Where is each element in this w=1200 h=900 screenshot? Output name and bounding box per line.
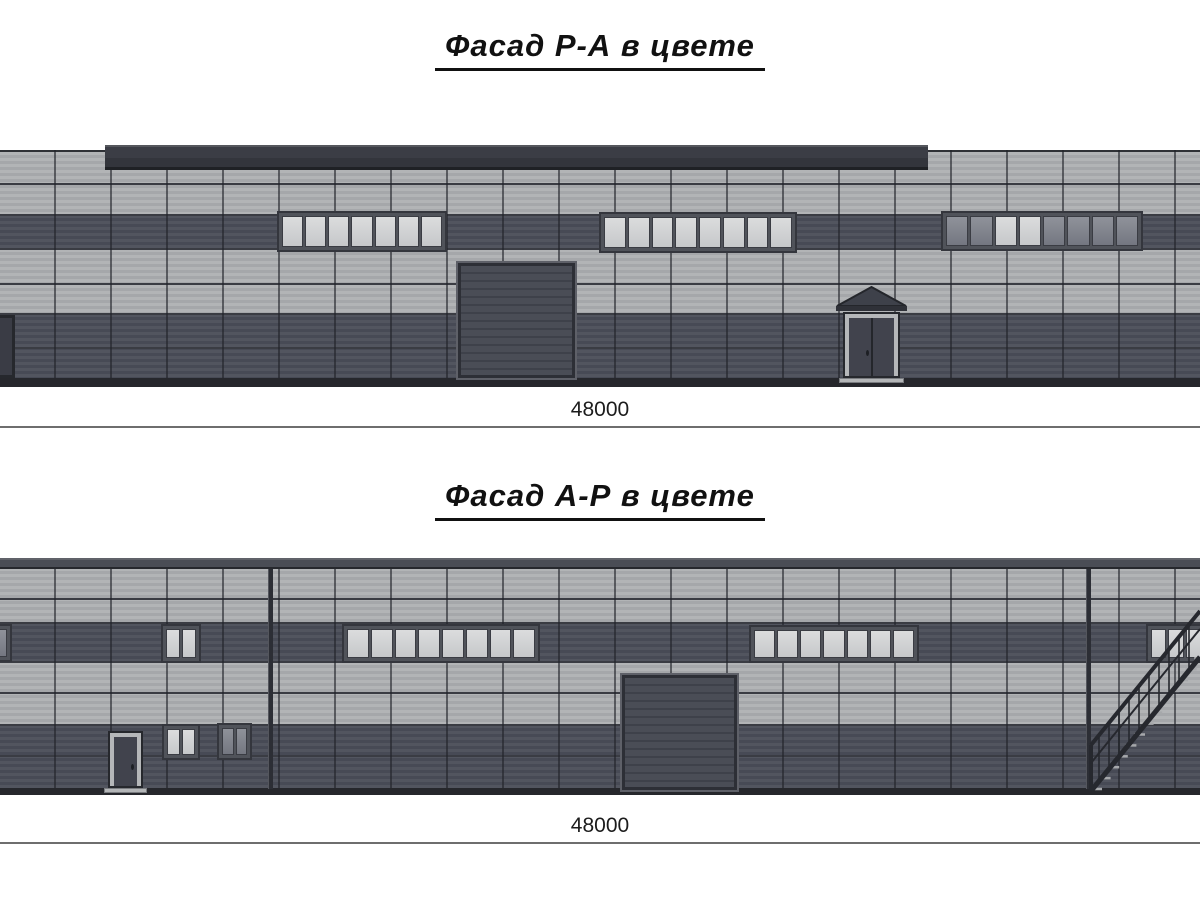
dimension-label: 48000 [0,814,1200,838]
window-pane [777,630,798,658]
drawing-sheet: Фасад Р-А в цвете 48000 Фасад А-Р в цвет… [0,0,1200,900]
window-pane [847,630,868,658]
overhead-door [622,675,737,790]
door-threshold [104,788,147,793]
window-pane [513,629,535,658]
window-pane [167,729,180,755]
dimension-line [0,842,1200,844]
window-pane [418,629,440,658]
ribbon-window [217,723,252,760]
window-pane [236,728,248,755]
entry-door-leaf [114,737,137,786]
window-pane [800,630,821,658]
window-pane [893,630,914,658]
window-pane [182,729,195,755]
ribbon-window [0,624,12,662]
window-pane [395,629,417,658]
ribbon-window [161,624,201,663]
window-pane [222,728,234,755]
door-handle [131,764,134,770]
ribbon-window [749,625,919,663]
entry-door [108,731,143,788]
window-pane [371,629,393,658]
window-pane [442,629,464,658]
window-pane [166,629,180,658]
ground-base [0,788,1200,795]
window-pane [182,629,196,658]
window-pane [870,630,891,658]
ribbon-window [162,724,200,760]
downpipe [268,569,273,789]
window-pane [754,630,775,658]
window-pane [823,630,844,658]
facade-drawing-ar [0,0,1200,900]
exterior-stair [1085,597,1200,793]
roof-coping [0,558,1200,569]
window-pane [347,629,369,658]
window-pane [490,629,512,658]
ribbon-window [342,624,540,663]
window-pane [0,629,7,657]
window-pane [466,629,488,658]
